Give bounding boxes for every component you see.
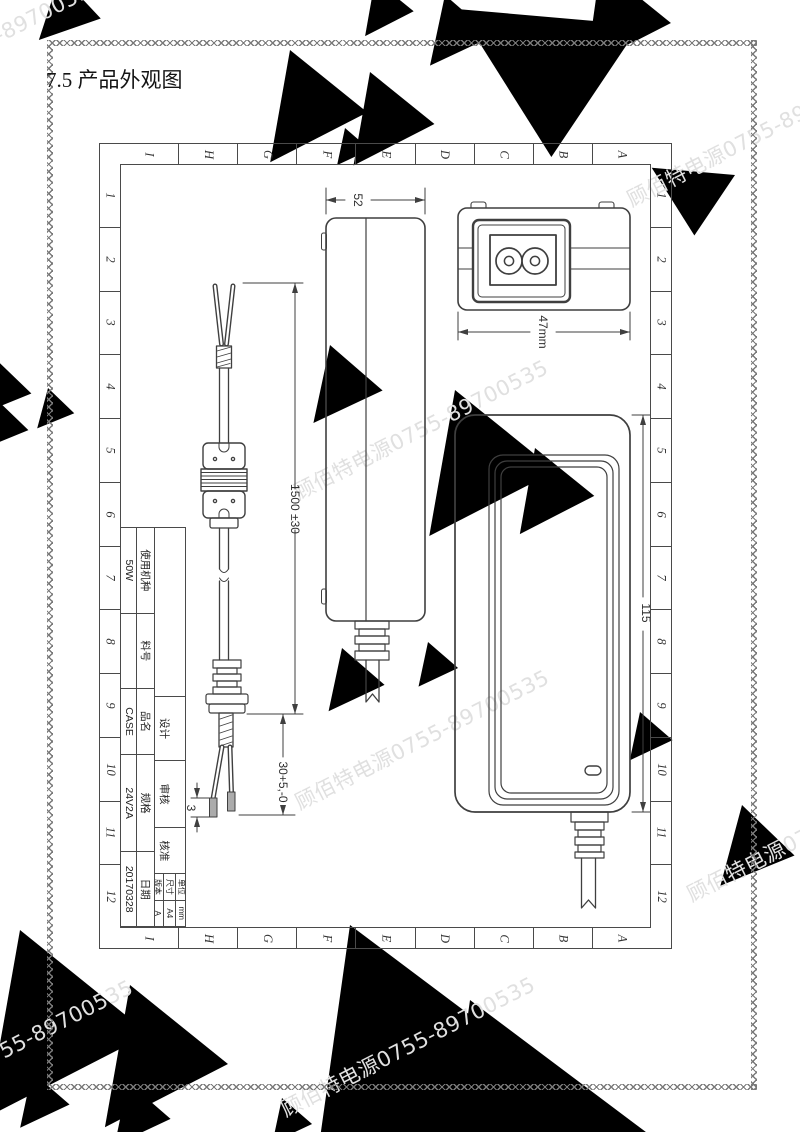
grid-col-label: G: [238, 144, 297, 164]
grid-row-label: 6: [651, 483, 671, 547]
grid-numbers-right: 1 2 3 4 5 6 7 8 9 10 11 12: [651, 164, 671, 928]
grid-row-label: 12: [651, 865, 671, 928]
title-block-approvals-row: 设计 审核 核准 单位mm 尺寸A4 版本A: [154, 528, 185, 926]
approval-design: 设计: [155, 697, 185, 761]
grid-letters-bottom: I H G F E D C B A: [120, 928, 651, 948]
field-label-date: 日期: [138, 852, 155, 926]
grid-col-label: B: [534, 144, 593, 164]
grid-row-label: 4: [651, 355, 671, 419]
zigzag-border-top: [47, 40, 757, 46]
info-version: 版本A: [155, 874, 164, 926]
grid-row-label: 2: [651, 228, 671, 292]
grid-row-label: 9: [651, 674, 671, 738]
approval-review: 审核: [155, 761, 185, 829]
grid-row-label: 1: [651, 164, 671, 228]
scanned-spec-page: { "page": { "heading": "7.5 产品外观图", "wat…: [0, 0, 800, 1132]
field-value-partno: [121, 614, 137, 690]
grid-col-label: F: [297, 144, 356, 164]
grid-col-label: E: [356, 928, 415, 948]
grid-col-label: H: [179, 144, 238, 164]
zigzag-border-bottom: [47, 1084, 757, 1090]
title-block-values-row: 50W CASE 24V2A 20170328: [121, 528, 137, 926]
grid-col-label: D: [416, 144, 475, 164]
grid-row-label: 8: [100, 610, 120, 674]
grid-row-label: 5: [651, 419, 671, 483]
grid-row-label: 12: [100, 865, 120, 928]
field-value-model: 50W: [121, 528, 137, 614]
grid-col-label: B: [534, 928, 593, 948]
approval-approve: 核准: [155, 828, 185, 874]
field-value-date: 20170328: [121, 852, 137, 926]
grid-col-label: I: [120, 144, 179, 164]
grid-row-label: 1: [100, 164, 120, 228]
grid-row-label: 6: [100, 483, 120, 547]
grid-col-label: D: [416, 928, 475, 948]
grid-row-label: 11: [651, 802, 671, 866]
info-size: 尺寸A4: [164, 874, 176, 926]
grid-col-label: E: [356, 144, 415, 164]
grid-row-label: 7: [651, 547, 671, 611]
grid-col-label: I: [120, 928, 179, 948]
field-label-partno: 料号: [138, 614, 155, 690]
zigzag-border-right: [751, 40, 757, 1090]
grid-row-label: 11: [100, 802, 120, 866]
field-value-spec: 24V2A: [121, 755, 137, 853]
grid-col-label: C: [475, 928, 534, 948]
grid-row-label: 4: [100, 355, 120, 419]
grid-col-label: H: [179, 928, 238, 948]
title-block-info: 单位mm 尺寸A4 版本A: [155, 874, 185, 926]
title-block-labels-row: 使用机种 料号 品名 规格 日期: [137, 528, 155, 926]
grid-numbers-left: 1 2 3 4 5 6 7 8 9 10 11 12: [100, 164, 120, 928]
grid-col-label: G: [238, 928, 297, 948]
grid-row-label: 5: [100, 419, 120, 483]
info-unit: 单位mm: [176, 874, 186, 926]
grid-row-label: 9: [100, 674, 120, 738]
title-block-blank-cell: [155, 528, 185, 697]
grid-col-label: A: [593, 928, 651, 948]
field-label-model: 使用机种: [138, 528, 155, 614]
grid-row-label: 3: [100, 292, 120, 356]
grid-letters-top: I H G F E D C B A: [120, 144, 651, 164]
title-block: 设计 审核 核准 单位mm 尺寸A4 版本A 使用机种 料号 品名 规格 日期: [120, 527, 186, 927]
grid-row-label: 3: [651, 292, 671, 356]
grid-col-label: C: [475, 144, 534, 164]
field-label-name: 品名: [138, 689, 155, 755]
grid-row-label: 10: [651, 738, 671, 802]
field-label-spec: 规格: [138, 755, 155, 853]
grid-row-label: 7: [100, 547, 120, 611]
zigzag-border-left: [47, 40, 53, 1090]
section-heading: 7.5 产品外观图: [46, 64, 183, 94]
grid-row-label: 10: [100, 738, 120, 802]
grid-row-label: 8: [651, 610, 671, 674]
grid-col-label: F: [297, 928, 356, 948]
drawing-area-border: [120, 164, 651, 928]
grid-row-label: 2: [100, 228, 120, 292]
field-value-name: CASE: [121, 689, 137, 755]
grid-col-label: A: [593, 144, 651, 164]
